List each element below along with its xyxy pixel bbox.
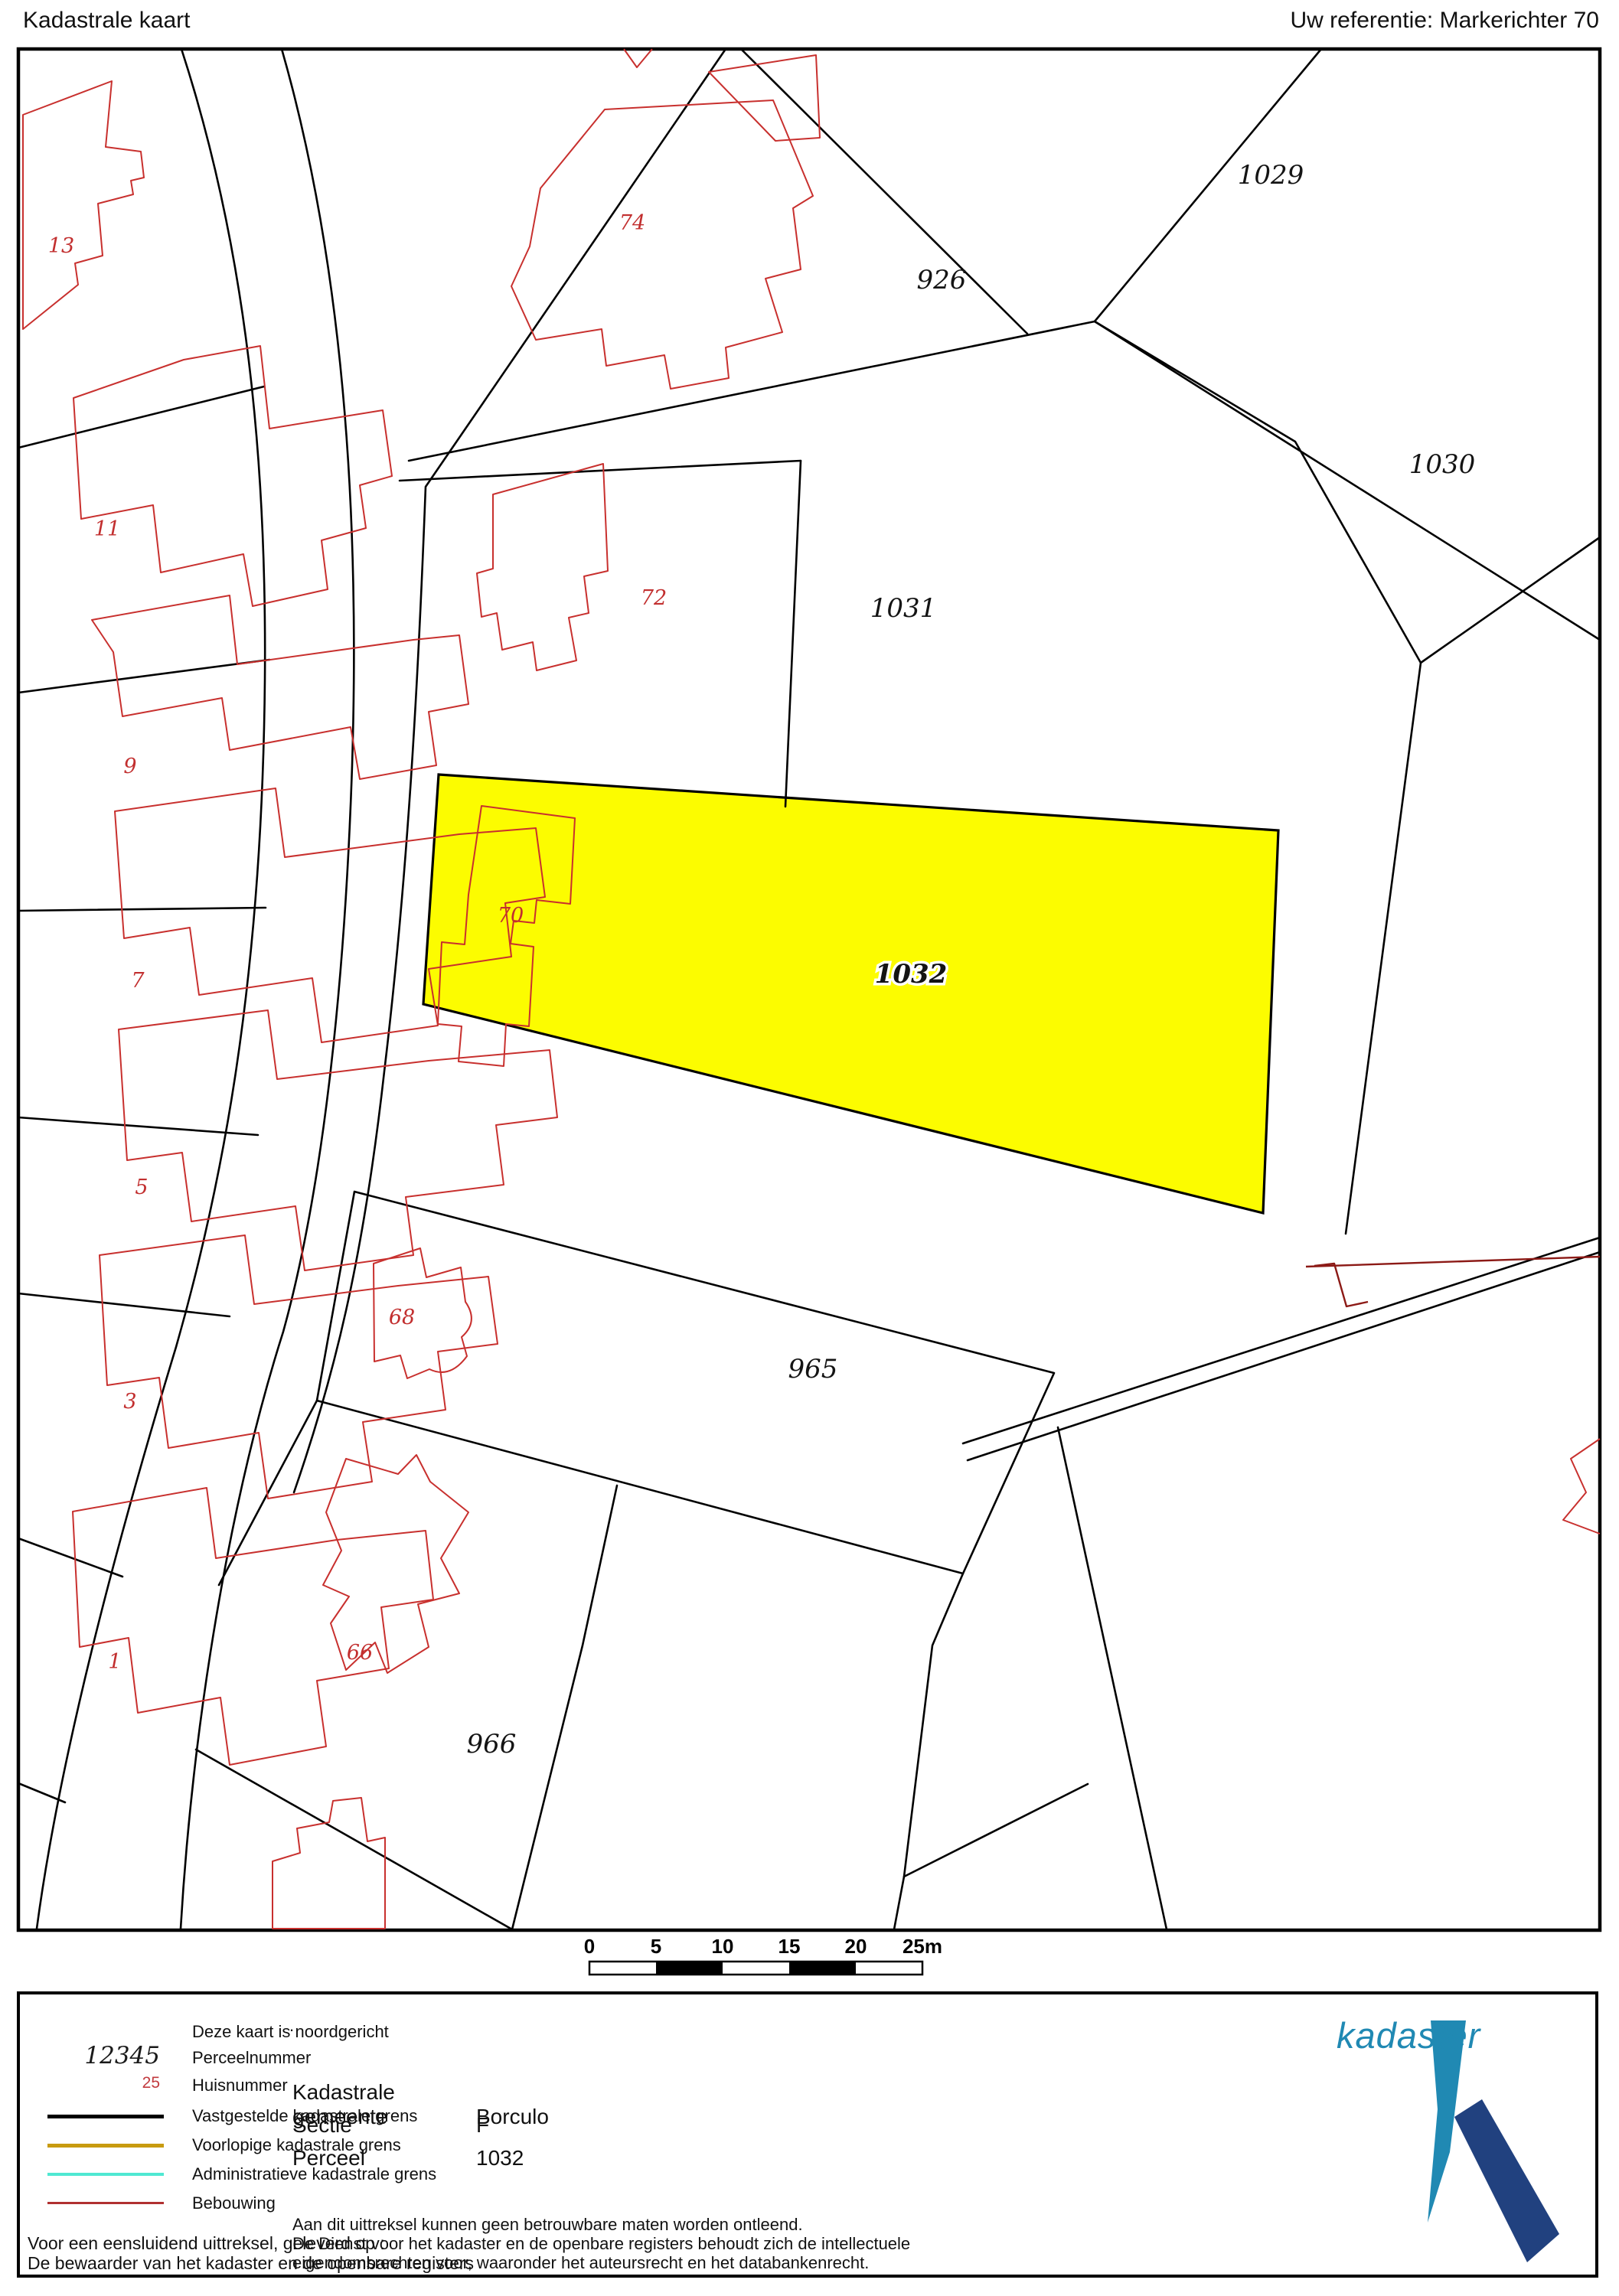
north-note: Deze kaart is noordgericht (192, 2022, 389, 2042)
scale-tick-10: 10 (712, 1935, 734, 1958)
info-label: Perceel (292, 2146, 476, 2170)
scale-tick-0: 0 (584, 1935, 595, 1958)
building-11 (73, 346, 392, 606)
parcel-label-966: 966 (467, 1729, 517, 1760)
info-row: Perceel1032 (292, 2146, 549, 2179)
legend-line-swatch (47, 2173, 164, 2176)
parcel-number-label: Perceelnummer (192, 2048, 311, 2068)
building-strip-line (1306, 1257, 1600, 1267)
scale-bar: 0510152025m (584, 1935, 942, 1975)
house-label-68: 68 (389, 1306, 415, 1329)
disclaimer-text: Aan dit uittreksel kunnen geen betrouwba… (292, 2215, 910, 2272)
scale-bar-frame (589, 1962, 922, 1975)
house-label-3: 3 (123, 1390, 136, 1414)
parcel-number-sample: 12345 (49, 2042, 160, 2069)
house-label-66: 66 (347, 1641, 373, 1665)
parcel-info: Kadastrale gemeenteBorculoSectieFPerceel… (292, 2080, 549, 2179)
parcel-label-1031: 1031 (870, 593, 937, 624)
disclaimer-line: De Dienst voor het kadaster en de openba… (292, 2234, 910, 2253)
building-74 (511, 100, 813, 389)
parcel-label-965: 965 (788, 1354, 838, 1384)
kadaster-logo: kadaster (1229, 2001, 1589, 2275)
info-label: Sectie (292, 2113, 476, 2138)
house-label-70: 70 (498, 904, 524, 928)
house-label-7: 7 (131, 969, 145, 993)
scale-bar-segment (656, 1962, 723, 1975)
house-label-1: 1 (108, 1650, 121, 1674)
scale-tick-20: 20 (845, 1935, 867, 1958)
building-right-edge (1563, 1439, 1600, 1534)
house-label-72: 72 (641, 586, 667, 610)
kadastrale-kaart-page: Kadastrale kaart Uw referentie: Markeric… (0, 0, 1619, 2296)
legend-line-swatch (47, 2115, 164, 2118)
logo-dark-stroke-icon (1454, 2099, 1559, 2262)
legend-row: Bebouwing (20, 2189, 556, 2218)
building-1 (73, 1488, 433, 1765)
building-top-dashed (709, 55, 820, 141)
scale-tick-5: 5 (651, 1935, 661, 1958)
building-5 (119, 1010, 557, 1270)
disclaimer-line: eigendomsrechten voor, waaronder het aut… (292, 2253, 910, 2272)
building-66 (323, 1455, 468, 1673)
parcel-label-1029: 1029 (1238, 160, 1304, 191)
legend-line-swatch (47, 2144, 164, 2148)
scale-tick-25m: 25m (903, 1935, 942, 1958)
building-13 (23, 81, 144, 329)
building-bottom-edge (273, 1798, 385, 1929)
highlighted-parcel-1032[interactable] (423, 775, 1278, 1213)
info-row: Kadastrale gemeenteBorculo (292, 2080, 549, 2113)
scale-bar-segment (789, 1962, 856, 1975)
cadastral-map: 9261029103010311032965966747270686613119… (0, 0, 1619, 1990)
parcel-label-1030: 1030 (1409, 449, 1476, 480)
parcel-label-926: 926 (917, 265, 967, 295)
house-label-13: 13 (48, 234, 74, 258)
scale-tick-15: 15 (778, 1935, 801, 1958)
building-strip-zigzag (1314, 1264, 1368, 1306)
house-label-11: 11 (94, 517, 120, 541)
building-72 (477, 464, 608, 670)
info-value: 1032 (476, 2146, 524, 2170)
building-top-fragment (624, 49, 652, 67)
disclaimer-line: Aan dit uittreksel kunnen geen betrouwba… (292, 2215, 910, 2234)
scale-bar-ticks: 0510152025m (584, 1935, 942, 1958)
info-value: F (476, 2113, 489, 2138)
house-label-9: 9 (123, 755, 136, 778)
kadaster-logo-text: kadaster (1337, 2014, 1480, 2056)
house-number-label: Huisnummer (192, 2076, 288, 2095)
legend-box: . Deze kaart is noordgericht 12345 Perce… (17, 1991, 1598, 2278)
legend-line-swatch (47, 2202, 164, 2204)
house-number-sample: 25 (49, 2074, 160, 2092)
legend-line-label: Bebouwing (192, 2193, 276, 2213)
house-label-5: 5 (135, 1176, 148, 1199)
house-label-74: 74 (619, 211, 645, 235)
parcel-label-1032: 1032 (875, 959, 948, 990)
